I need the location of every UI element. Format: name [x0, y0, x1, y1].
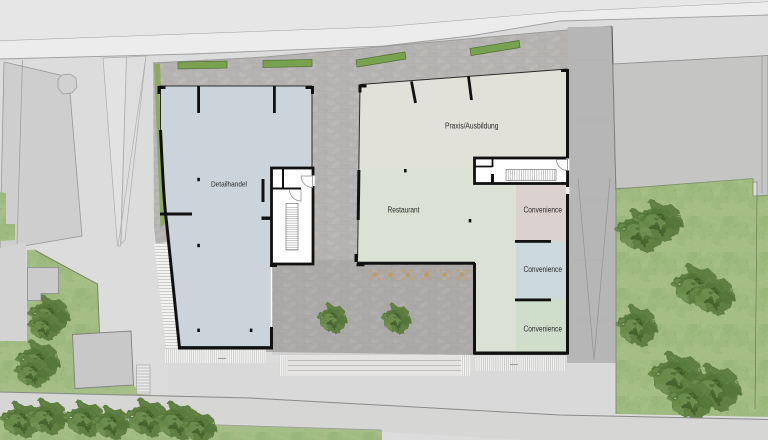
svg-text:Restaurant: Restaurant [388, 206, 421, 215]
svg-text:Convenience: Convenience [524, 265, 563, 274]
svg-text:Convenience: Convenience [524, 325, 563, 334]
svg-text:Praxis/Ausbildung: Praxis/Ausbildung [445, 122, 499, 131]
svg-text:Detailhandel: Detailhandel [211, 179, 247, 188]
svg-text:Convenience: Convenience [524, 206, 563, 215]
